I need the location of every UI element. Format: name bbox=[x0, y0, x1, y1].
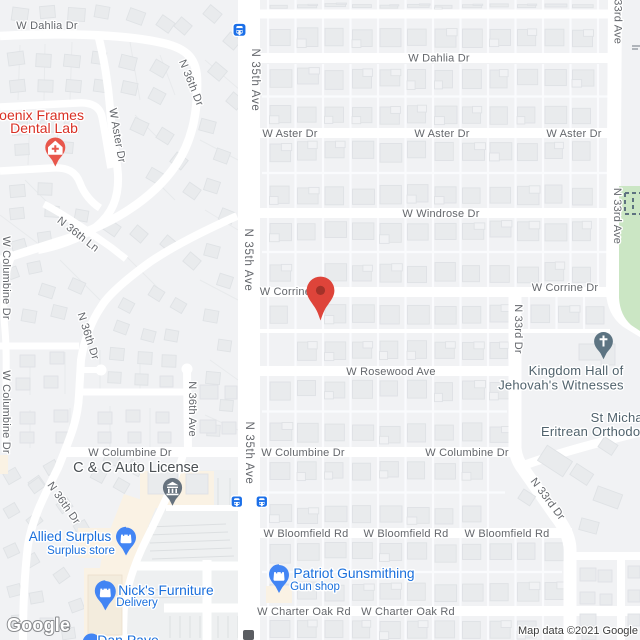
svg-text:Delivery: Delivery bbox=[116, 597, 158, 609]
svg-text:Allied Surplus: Allied Surplus bbox=[29, 529, 112, 544]
svg-text:N 33rd Ave: N 33rd Ave bbox=[612, 0, 624, 44]
svg-text:W Windrose Dr: W Windrose Dr bbox=[402, 208, 479, 220]
svg-text:Dan Pave: Dan Pave bbox=[97, 632, 159, 640]
svg-text:N 33rd Dr: N 33rd Dr bbox=[512, 304, 524, 354]
svg-text:N 36th Ave: N 36th Ave bbox=[186, 381, 198, 437]
svg-text:Kingdom Hall of: Kingdom Hall of bbox=[529, 363, 624, 378]
svg-text:W Aster Dr: W Aster Dr bbox=[262, 128, 317, 140]
svg-text:W Columbine Dr: W Columbine Dr bbox=[88, 447, 172, 459]
svg-text:N 35th Ave: N 35th Ave bbox=[243, 421, 255, 484]
svg-text:W Columbine Dr: W Columbine Dr bbox=[0, 370, 12, 454]
svg-text:Patriot Gunsmithing: Patriot Gunsmithing bbox=[293, 566, 414, 581]
svg-text:St Michael: St Michael bbox=[591, 410, 640, 425]
svg-text:W Dahlia Dr: W Dahlia Dr bbox=[408, 53, 470, 65]
svg-text:W Columbine Dr: W Columbine Dr bbox=[0, 236, 12, 320]
svg-text:Gun shop: Gun shop bbox=[290, 581, 340, 593]
svg-text:W Bloomfield Rd: W Bloomfield Rd bbox=[465, 528, 550, 540]
svg-text:W Charter Oak Rd: W Charter Oak Rd bbox=[257, 606, 351, 618]
svg-text:W Columbine Dr: W Columbine Dr bbox=[261, 447, 345, 459]
svg-text:Jehovah's Witnesses: Jehovah's Witnesses bbox=[498, 378, 624, 393]
svg-text:W Corrine Dr: W Corrine Dr bbox=[532, 282, 599, 294]
svg-text:W Columbine Dr: W Columbine Dr bbox=[425, 447, 509, 459]
svg-text:W Bloomfield Rd: W Bloomfield Rd bbox=[364, 528, 449, 540]
svg-text:Google: Google bbox=[7, 615, 70, 635]
svg-text:N 35th Ave: N 35th Ave bbox=[242, 228, 254, 291]
svg-text:W Rosewood Ave: W Rosewood Ave bbox=[346, 366, 435, 378]
svg-text:Nick's Furniture: Nick's Furniture bbox=[118, 583, 214, 598]
svg-text:N 35th Ave: N 35th Ave bbox=[249, 48, 261, 111]
svg-text:Surplus store: Surplus store bbox=[47, 545, 115, 557]
svg-text:W Dahlia Dr: W Dahlia Dr bbox=[16, 20, 78, 32]
svg-text:W Charter Oak Rd: W Charter Oak Rd bbox=[361, 606, 455, 618]
svg-text:C & C Auto License: C & C Auto License bbox=[73, 460, 199, 476]
svg-text:W Aster Dr: W Aster Dr bbox=[414, 128, 469, 140]
svg-text:N 33rd Ave: N 33rd Ave bbox=[611, 188, 623, 244]
svg-text:Eritrean Orthodox: Eritrean Orthodox bbox=[541, 424, 640, 439]
svg-text:Map data ©2021 Google: Map data ©2021 Google bbox=[518, 625, 638, 637]
svg-text:W Bloomfield Rd: W Bloomfield Rd bbox=[264, 528, 349, 540]
svg-text:Dental Lab: Dental Lab bbox=[10, 120, 78, 136]
svg-text:W Aster Dr: W Aster Dr bbox=[546, 128, 601, 140]
